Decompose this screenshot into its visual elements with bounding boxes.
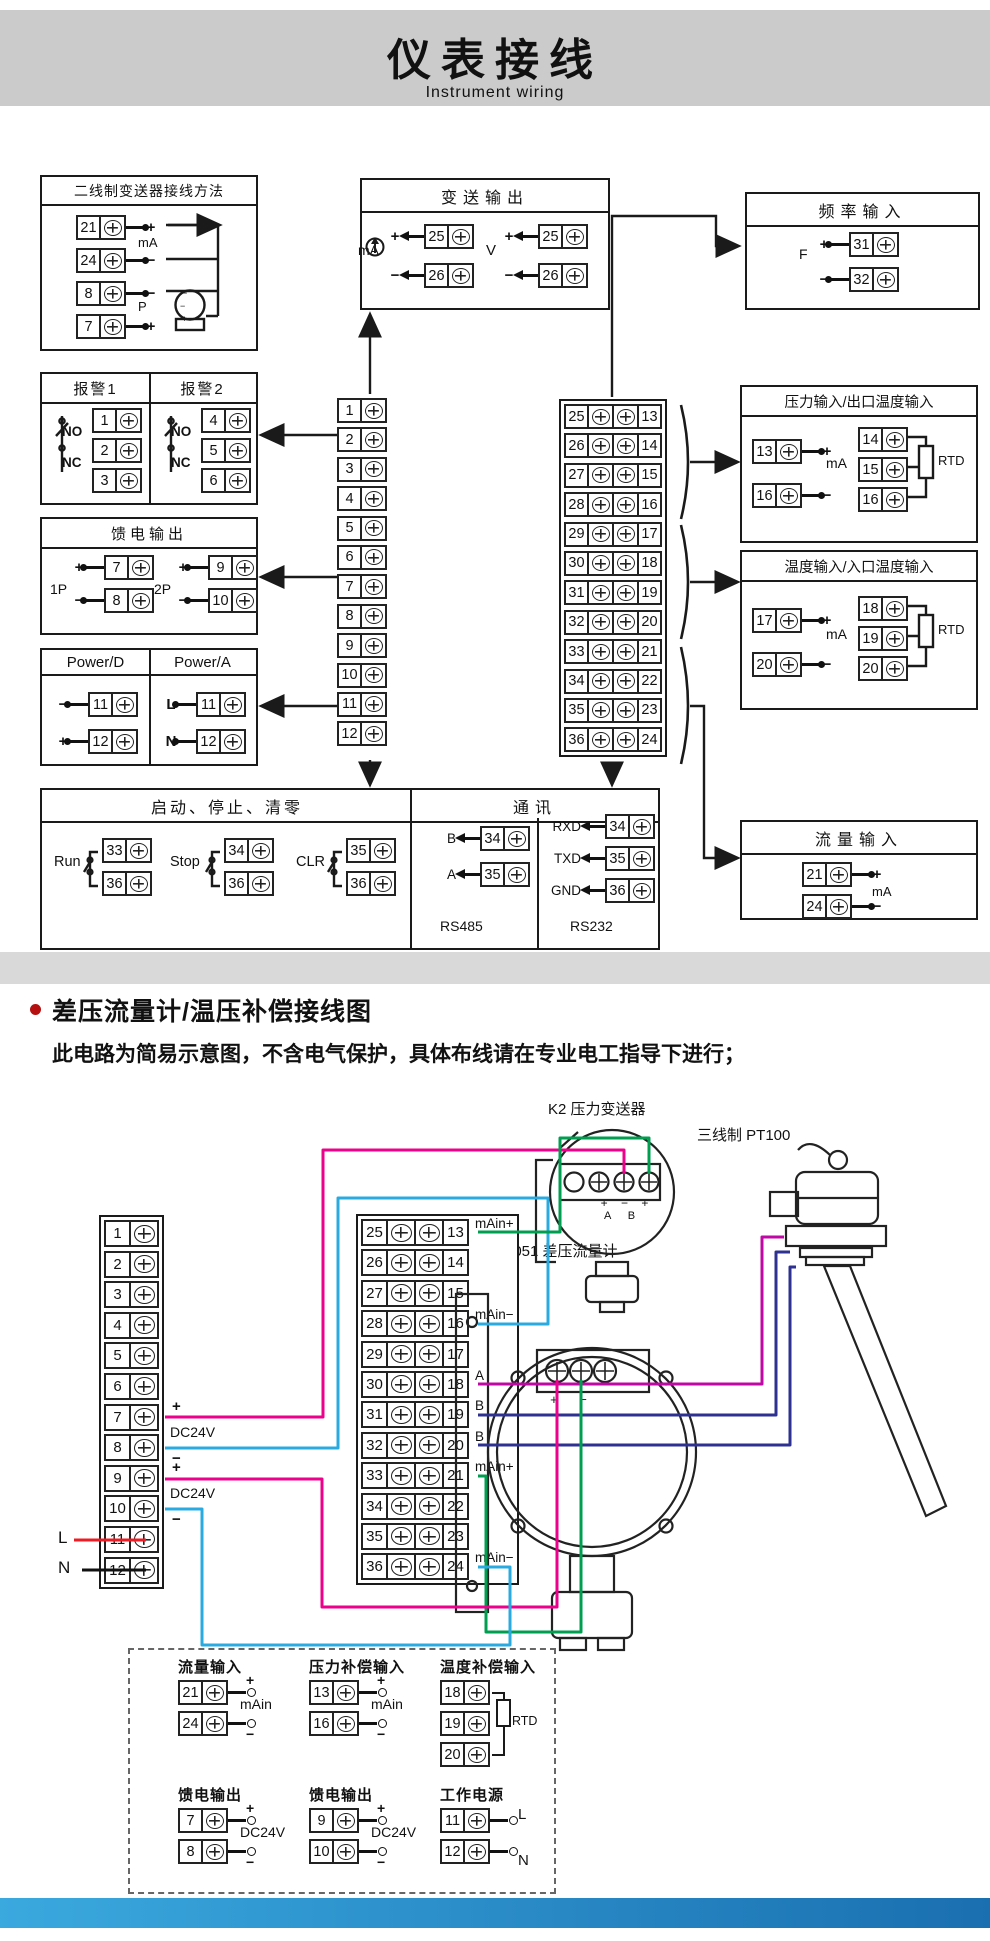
terminal-number: 2	[92, 438, 117, 463]
terminal-number: 30	[564, 551, 589, 576]
terminal-number: 12	[440, 1839, 465, 1864]
no-label: NO	[171, 424, 191, 439]
terminal-row: 16	[858, 487, 908, 512]
run-label: Run	[54, 854, 81, 870]
mini-title: 流量输入	[178, 1656, 242, 1677]
terminal-number: 17	[637, 522, 662, 547]
terminal-number: 23	[637, 698, 662, 723]
wire	[178, 729, 196, 754]
comm-row: TXD 35	[547, 846, 655, 871]
terminal-number: 23	[442, 1523, 469, 1550]
box-title: 馈电输出	[42, 519, 256, 549]
terminal-number: 5	[104, 1342, 131, 1369]
screw-terminal-icon	[360, 633, 387, 658]
screw-terminal-icon	[612, 522, 639, 547]
group-label: 1P	[50, 581, 67, 597]
wire	[802, 652, 820, 677]
terminal-row: 3	[104, 1281, 159, 1308]
screw-terminal-icon	[775, 652, 802, 677]
footer-bar	[0, 1898, 990, 1928]
terminal-row: 20	[858, 656, 908, 681]
arrow-wire	[583, 878, 605, 903]
no-label: NO	[62, 424, 82, 439]
screw-terminal-icon	[115, 438, 142, 463]
mini-title: 馈电输出	[178, 1784, 242, 1805]
arrow-wire	[458, 826, 480, 851]
terminal-number: 10	[208, 588, 233, 613]
screw-terminal-icon	[447, 224, 474, 249]
wire	[852, 862, 870, 887]
terminal-number: 3	[92, 468, 117, 493]
terminal-row: 1	[337, 398, 387, 423]
terminal-number: 20	[442, 1432, 469, 1459]
terminal-number: 21	[637, 639, 662, 664]
screw-terminal-icon	[414, 1280, 444, 1307]
main-label: mAin	[371, 1696, 403, 1712]
screw-terminal-icon	[561, 263, 588, 288]
wire	[802, 439, 820, 464]
screw-terminal-icon	[332, 1808, 359, 1833]
wire	[359, 1839, 377, 1864]
screw-terminal-icon	[369, 838, 396, 863]
screw-terminal-icon	[825, 894, 852, 919]
terminal-number: 21	[442, 1462, 469, 1489]
screw-terminal-icon	[612, 727, 639, 752]
dc24v-label: DC24V	[170, 1424, 215, 1440]
screw-terminal-icon	[881, 487, 908, 512]
terminal-number: 21	[802, 862, 827, 887]
tx-pin: −	[182, 288, 187, 298]
screw-terminal-icon	[881, 656, 908, 681]
comm-row: RXD 34	[547, 814, 655, 839]
screw-terminal-icon	[463, 1742, 490, 1767]
box-title: 流量输入	[742, 822, 976, 855]
terminal-number: 8	[104, 1434, 131, 1461]
screw-terminal-icon	[129, 1220, 159, 1247]
screw-terminal-icon	[386, 1280, 416, 1307]
terminal-number: 16	[309, 1711, 334, 1736]
terminal-number: 12	[196, 729, 221, 754]
box-frequency-input: 频率输入 F + 31 − 32	[745, 192, 980, 310]
dc24v-label: DC24V	[240, 1824, 285, 1840]
terminal-row: 25 13 mAin+	[361, 1219, 514, 1246]
wire	[228, 1711, 246, 1736]
terminal-number: 11	[440, 1808, 465, 1833]
terminal-number: 24	[76, 248, 101, 273]
k2-pin-names: A B	[594, 1210, 652, 1222]
terminal-row: 12	[337, 721, 387, 746]
arrow-wire	[516, 224, 538, 249]
terminal-row: 24 −	[76, 248, 158, 273]
terminal-number: 24	[637, 727, 662, 752]
terminal-row: 9	[104, 1465, 159, 1492]
terminal-number: 2	[337, 427, 362, 452]
terminal-number: 8	[178, 1839, 203, 1864]
terminal-number: 16	[858, 487, 883, 512]
terminal-number: 5	[201, 438, 226, 463]
terminal-row: + 7	[72, 555, 154, 580]
screw-terminal-icon	[129, 1281, 159, 1308]
terminal-row: 8	[104, 1434, 159, 1461]
runbox-title: 启动、停止、清零	[42, 790, 412, 821]
terminal-row: 2	[92, 438, 142, 463]
screw-terminal-icon	[447, 263, 474, 288]
terminal-row: 11	[440, 1808, 520, 1833]
screw-terminal-icon	[360, 545, 387, 570]
terminal-number: 18	[440, 1680, 465, 1705]
terminal-row: 25 13	[564, 404, 662, 429]
screw-terminal-icon	[201, 1680, 228, 1705]
terminal-row: 4	[201, 408, 251, 433]
terminal-row: 9	[337, 633, 387, 658]
terminal-row: 34 22	[361, 1493, 514, 1520]
screw-terminal-icon	[386, 1523, 416, 1550]
box-title: 二线制变送器接线方法	[42, 177, 256, 206]
screw-terminal-icon	[201, 1711, 228, 1736]
terminal-number: 36	[361, 1553, 388, 1580]
screw-terminal-icon	[129, 1434, 159, 1461]
bullet-icon	[30, 1004, 41, 1015]
screw-terminal-icon	[561, 224, 588, 249]
terminal-number: 28	[564, 492, 589, 517]
screw-terminal-icon	[360, 604, 387, 629]
wire-tag: mAin+	[475, 1216, 514, 1231]
terminal-row: 13 +	[752, 439, 834, 464]
page-subtitle: Instrument wiring	[0, 84, 990, 102]
section2-title: 差压流量计/温压补偿接线图	[52, 992, 372, 1028]
terminal-number: 8	[104, 588, 129, 613]
ma-label: mA	[138, 235, 158, 250]
terminal-number: 36	[564, 727, 589, 752]
terminal-row: 28 16 mAin−	[361, 1310, 514, 1337]
terminal-number: 14	[442, 1249, 469, 1276]
screw-terminal-icon	[414, 1432, 444, 1459]
terminal-row: − 11	[56, 692, 138, 717]
power-d-title: Power/D	[42, 650, 149, 674]
terminal-number: 29	[361, 1341, 388, 1368]
plus-label: +	[172, 1459, 181, 1476]
terminal-row: − 10	[176, 588, 258, 613]
terminal-number: 34	[361, 1493, 388, 1520]
terminal-row: 31 19 B	[361, 1401, 514, 1428]
terminal-row: 27 15	[564, 463, 662, 488]
terminal-number: 13	[309, 1680, 334, 1705]
screw-terminal-icon	[360, 692, 387, 717]
plus-label: +	[172, 1398, 181, 1415]
screw-terminal-icon	[775, 439, 802, 464]
terminal-number: 27	[361, 1280, 388, 1307]
terminal-number: 25	[564, 404, 589, 429]
screw-terminal-icon	[247, 871, 274, 896]
terminal-row: + 31	[817, 232, 899, 257]
terminal-number: 35	[361, 1523, 388, 1550]
terminal-row: 36 24 mAin−	[361, 1553, 514, 1580]
terminal-row: 2	[104, 1251, 159, 1278]
v-label: V	[486, 242, 496, 259]
terminal-row: 33 21 mAin+	[361, 1462, 514, 1489]
terminal-number: 25	[538, 224, 563, 249]
wire	[126, 314, 144, 339]
screw-terminal-icon	[99, 314, 126, 339]
screw-terminal-icon	[587, 463, 614, 488]
wire	[70, 729, 88, 754]
screw-terminal-icon	[386, 1249, 416, 1276]
rtd-label: RTD	[938, 453, 964, 468]
signal-label: GND	[547, 883, 583, 898]
screw-terminal-icon	[872, 232, 899, 257]
terminal-number: 15	[637, 463, 662, 488]
plus-label: +	[246, 1672, 254, 1688]
terminal-row: + 25	[502, 224, 588, 249]
screw-terminal-icon	[129, 1251, 159, 1278]
terminal-row: − 26	[502, 263, 588, 288]
screw-terminal-icon	[115, 408, 142, 433]
terminal-strip-mid-2: 25 13 mAin+ 26 14 27 15 28	[356, 1214, 519, 1585]
wire	[86, 588, 104, 613]
terminal-number: 26	[538, 263, 563, 288]
terminal-number: 35	[480, 862, 505, 887]
screw-terminal-icon	[219, 729, 246, 754]
wire	[86, 555, 104, 580]
screw-terminal-icon	[99, 281, 126, 306]
p-label: P	[138, 299, 147, 314]
screw-terminal-icon	[881, 427, 908, 452]
screw-terminal-icon	[612, 639, 639, 664]
terminal-number: 11	[196, 692, 221, 717]
screw-terminal-icon	[224, 408, 251, 433]
screw-terminal-icon	[129, 1495, 159, 1522]
pt100-label: 三线制 PT100	[697, 1124, 790, 1145]
screw-terminal-icon	[463, 1680, 490, 1705]
dc24v-label: DC24V	[371, 1824, 416, 1840]
clr-label: CLR	[296, 854, 325, 870]
terminal-number: 16	[752, 483, 777, 508]
terminal-strip-left-2: 1 2 3 4 5 6 7 8	[99, 1215, 164, 1589]
terminal-row: 30 18 A	[361, 1371, 514, 1398]
terminal-number: 9	[337, 633, 362, 658]
screw-terminal-icon	[386, 1401, 416, 1428]
signal-label: TXD	[547, 851, 583, 866]
terminal-number: 26	[361, 1249, 388, 1276]
terminal-row: 8	[337, 604, 387, 629]
box-two-wire-transmitter: 二线制变送器接线方法 21 + 24 − 8 − 7 +	[40, 175, 258, 351]
screw-terminal-icon	[129, 1373, 159, 1400]
screw-terminal-icon	[414, 1249, 444, 1276]
screw-terminal-icon	[386, 1219, 416, 1246]
screw-terminal-icon	[129, 1404, 159, 1431]
screw-terminal-icon	[881, 626, 908, 651]
neutral-label: N	[518, 1852, 529, 1869]
screw-terminal-icon	[587, 727, 614, 752]
screw-terminal-icon	[129, 1342, 159, 1369]
screw-terminal-icon	[386, 1432, 416, 1459]
mini-title: 工作电源	[440, 1784, 504, 1805]
screw-terminal-icon	[386, 1462, 416, 1489]
terminal-number: 9	[208, 555, 233, 580]
box-temperature-input: 温度输入/入口温度输入 17 + 20 − mA 18 19 20	[740, 550, 978, 710]
terminal-number: 10	[309, 1839, 334, 1864]
screw-terminal-icon	[825, 862, 852, 887]
screw-terminal-icon	[587, 698, 614, 723]
terminal-number: 17	[752, 608, 777, 633]
box-feed-output: 馈电输出 1P 2P + 7 − 8 + 9 − 10	[40, 517, 258, 635]
terminal-row: 5	[337, 516, 387, 541]
box-flow-input: 流量输入 21 + 24 − mA	[740, 820, 978, 920]
screw-terminal-icon	[612, 610, 639, 635]
terminal-row: 29 17	[361, 1341, 514, 1368]
screw-terminal-icon	[360, 427, 387, 452]
terminal-number: 26	[424, 263, 449, 288]
terminal-row: − 26	[388, 263, 474, 288]
terminal-row: 6	[104, 1373, 159, 1400]
terminal-number: 34	[480, 826, 505, 851]
terminal-number: 7	[178, 1808, 203, 1833]
screw-terminal-icon	[386, 1371, 416, 1398]
screw-terminal-icon	[332, 1680, 359, 1705]
f-label: F	[799, 246, 808, 262]
wire-tag: mAin−	[475, 1307, 514, 1322]
wire	[490, 1808, 508, 1833]
terminal-number: 32	[849, 267, 874, 292]
terminal-row: 6	[201, 468, 251, 493]
minus-label: −	[377, 1854, 385, 1870]
terminal-row: 11	[337, 692, 387, 717]
section-divider	[0, 952, 990, 984]
terminal-row: 10	[104, 1495, 159, 1522]
terminal-number: 1	[337, 398, 362, 423]
wire	[490, 1839, 508, 1864]
screw-terminal-icon	[612, 492, 639, 517]
screw-terminal-icon	[360, 516, 387, 541]
terminal-row: 30 18	[564, 551, 662, 576]
screw-terminal-icon	[414, 1493, 444, 1520]
terminal-number: 12	[88, 729, 113, 754]
terminal-number: 24	[802, 894, 827, 919]
terminal-number: 13	[637, 404, 662, 429]
terminal-number: 12	[337, 721, 362, 746]
screw-terminal-icon	[360, 398, 387, 423]
screw-terminal-icon	[231, 588, 258, 613]
tx-pin: −	[180, 301, 185, 311]
terminal-number: 18	[637, 551, 662, 576]
arrow-wire	[516, 263, 538, 288]
screw-terminal-icon	[628, 846, 655, 871]
terminal-row: 36 24	[564, 727, 662, 752]
terminal-number: 36	[102, 871, 127, 896]
terminal-row: − 8	[72, 588, 154, 613]
group-label: 2P	[154, 581, 171, 597]
arrow-wire	[583, 814, 605, 839]
minus-label: −	[377, 1726, 385, 1742]
screw-terminal-icon	[612, 404, 639, 429]
wire	[852, 894, 870, 919]
screw-terminal-icon	[414, 1462, 444, 1489]
wire	[190, 588, 208, 613]
terminal-number: 19	[440, 1711, 465, 1736]
screw-terminal-icon	[224, 438, 251, 463]
signal-label: A	[422, 867, 458, 882]
comm-row: GND 36	[547, 878, 655, 903]
minus-label: −	[246, 1726, 254, 1742]
terminal-number: 6	[337, 545, 362, 570]
terminal-row: 20	[440, 1742, 490, 1767]
arrow-wire	[402, 263, 424, 288]
screw-terminal-icon	[775, 608, 802, 633]
terminal-number: 33	[102, 838, 127, 863]
terminal-number: 15	[858, 457, 883, 482]
tx-pin: +	[182, 314, 187, 324]
screw-terminal-icon	[612, 551, 639, 576]
screw-terminal-icon	[111, 729, 138, 754]
rtd-label: RTD	[512, 1714, 537, 1728]
screw-terminal-icon	[247, 838, 274, 863]
terminal-number: 7	[104, 1404, 131, 1431]
k2-pin-signs: + − +	[592, 1196, 662, 1210]
screw-terminal-icon	[99, 248, 126, 273]
terminal-number: 34	[224, 838, 249, 863]
comm-row: A 35	[422, 862, 530, 887]
terminal-number: 35	[346, 838, 371, 863]
terminal-row: 3	[92, 468, 142, 493]
terminal-number: 36	[605, 878, 630, 903]
screw-terminal-icon	[414, 1401, 444, 1428]
alarm2-title: 报警2	[149, 374, 256, 402]
screw-terminal-icon	[628, 814, 655, 839]
box-pressure-input: 压力输入/出口温度输入 13 + 16 − mA 14 15 16	[740, 385, 978, 543]
terminal-row: 26 14	[361, 1249, 514, 1276]
terminal-row: 19	[440, 1711, 490, 1736]
screw-terminal-icon	[332, 1711, 359, 1736]
screw-terminal-icon	[129, 1526, 159, 1553]
terminal-row: 32 20	[564, 610, 662, 635]
terminal-row: 18	[440, 1680, 490, 1705]
terminal-number: 4	[201, 408, 226, 433]
ma-label: mA	[826, 455, 847, 471]
screw-terminal-icon	[414, 1523, 444, 1550]
wire	[831, 232, 849, 257]
terminal-number: 19	[442, 1401, 469, 1428]
terminal-number: 31	[849, 232, 874, 257]
terminal-row: 5	[104, 1342, 159, 1369]
screw-terminal-icon	[129, 1557, 159, 1584]
terminal-number: 17	[442, 1341, 469, 1368]
terminal-number: 13	[442, 1219, 469, 1246]
terminal-number: 22	[442, 1493, 469, 1520]
nc-label: NC	[171, 455, 191, 470]
terminal-number: 20	[858, 656, 883, 681]
screw-terminal-icon	[125, 871, 152, 896]
terminal-number: 36	[224, 871, 249, 896]
wire	[802, 608, 820, 633]
terminal-row: 16 −	[752, 483, 834, 508]
signal-label: RXD	[547, 819, 583, 834]
terminal-number: 2	[104, 1251, 131, 1278]
line-label: L	[518, 1806, 526, 1823]
screw-terminal-icon	[360, 574, 387, 599]
screw-terminal-icon	[414, 1341, 444, 1368]
terminal-number: 8	[76, 281, 101, 306]
terminal-number: 26	[564, 433, 589, 458]
wire	[190, 555, 208, 580]
screw-terminal-icon	[201, 1839, 228, 1864]
terminal-row: 33 21	[564, 639, 662, 664]
screw-terminal-icon	[881, 457, 908, 482]
terminal-number: 27	[564, 463, 589, 488]
screw-terminal-icon	[587, 669, 614, 694]
terminal-row: 29 17	[564, 522, 662, 547]
wire-tag: mAin+	[475, 1459, 514, 1474]
terminal-number: 11	[104, 1526, 131, 1553]
